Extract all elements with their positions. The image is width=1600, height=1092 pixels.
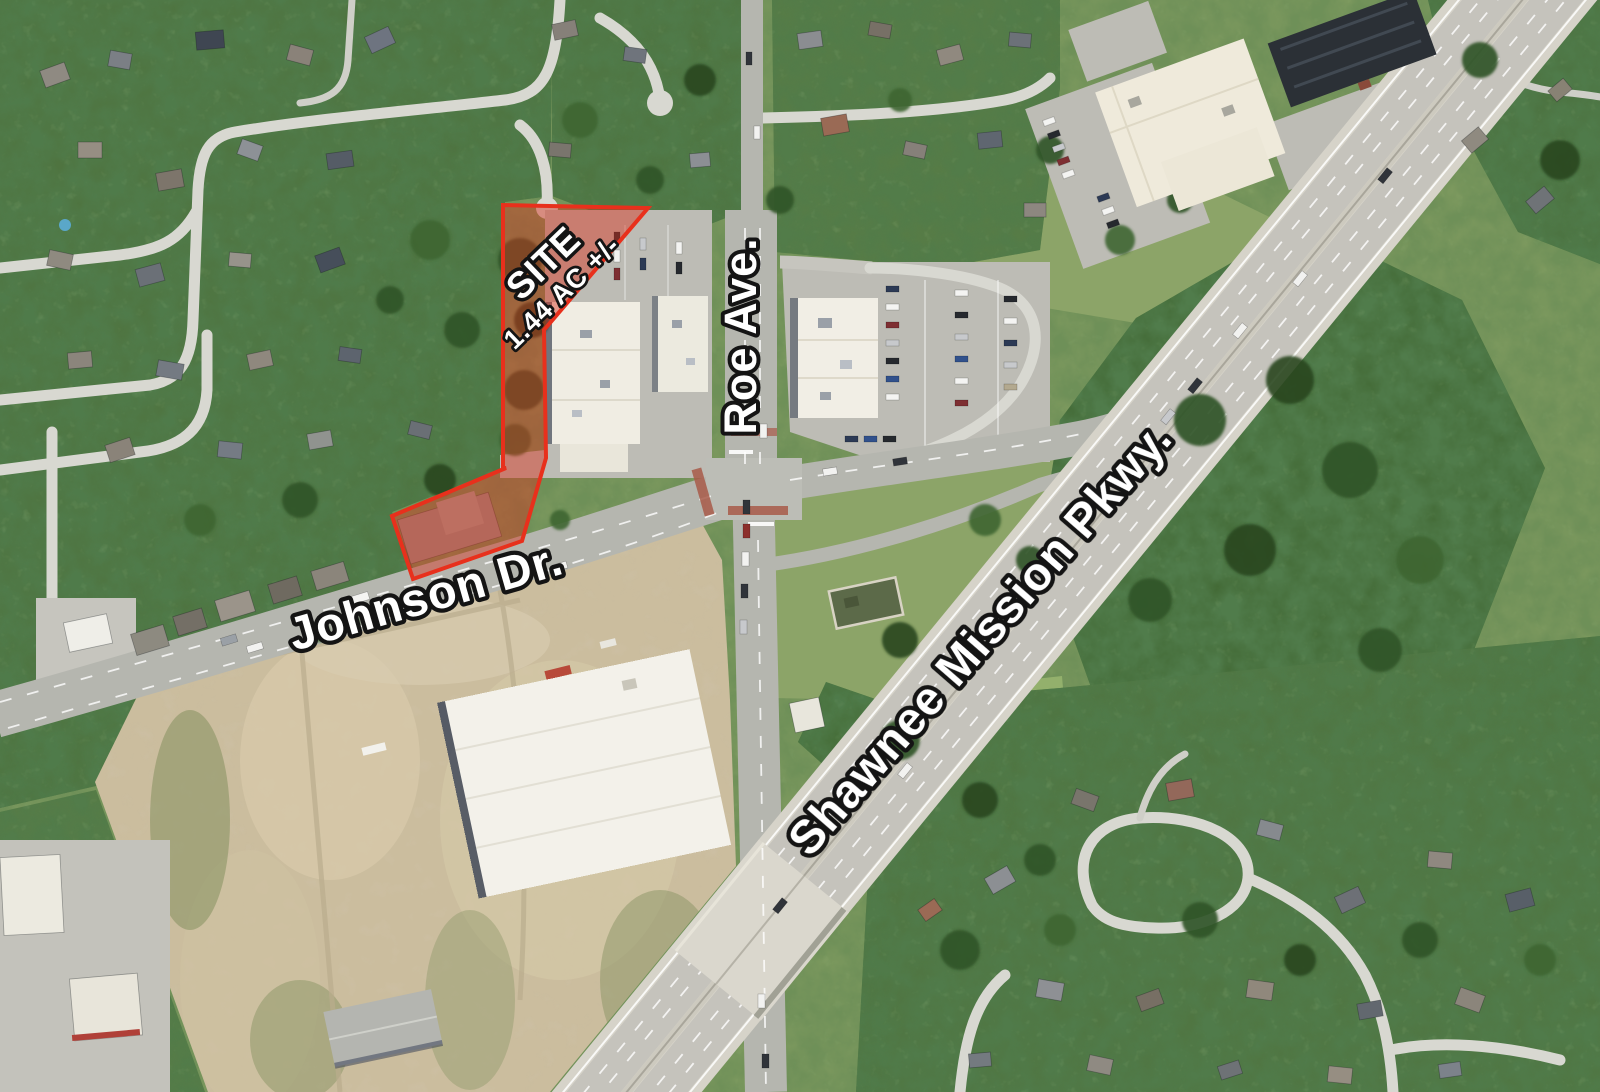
building-west-commercial bbox=[546, 302, 640, 472]
swimming-pool bbox=[59, 219, 71, 231]
utility-building bbox=[789, 697, 825, 733]
building-east-commercial bbox=[790, 298, 878, 418]
aerial-map: SITE 1.44 AC +/- Roe Ave. Johnson Dr. Sh… bbox=[0, 0, 1600, 1092]
building-west-small bbox=[652, 296, 708, 392]
roe-ave-label: Roe Ave. bbox=[715, 237, 766, 434]
aerial-map-screenshot: SITE 1.44 AC +/- Roe Ave. Johnson Dr. Sh… bbox=[0, 0, 1600, 1092]
